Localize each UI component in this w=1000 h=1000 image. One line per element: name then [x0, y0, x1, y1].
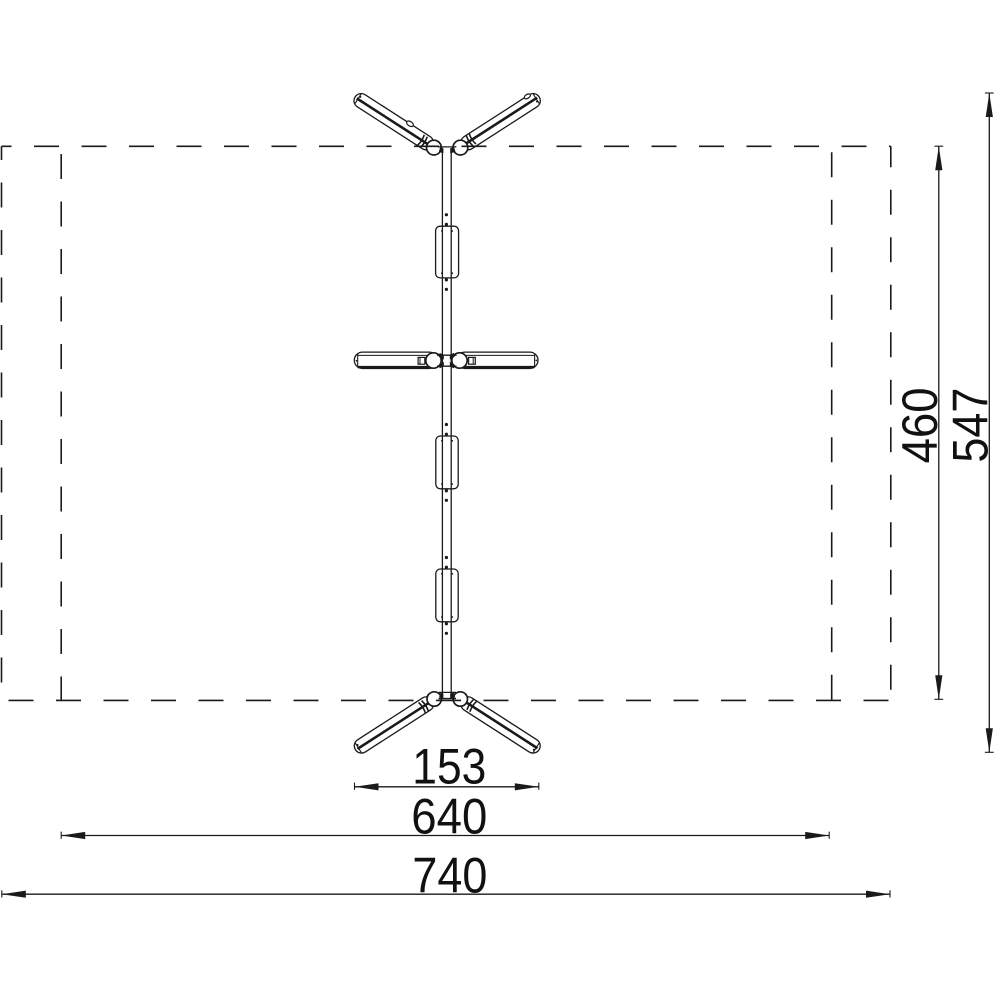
svg-text:153: 153	[412, 739, 486, 795]
svg-text:740: 740	[412, 847, 487, 903]
svg-text:460: 460	[892, 387, 948, 463]
svg-text:547: 547	[943, 388, 999, 463]
svg-text:640: 640	[411, 788, 487, 844]
